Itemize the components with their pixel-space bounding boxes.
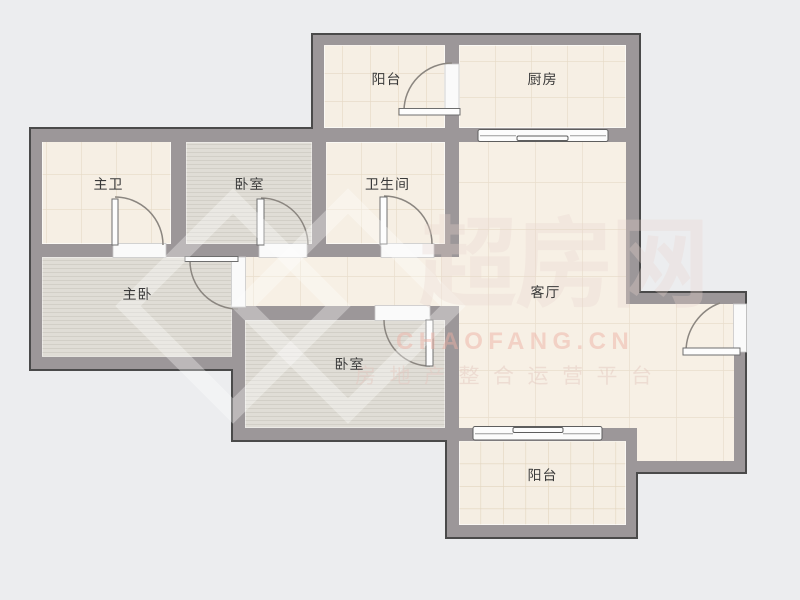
svg-text:CHAOFANG.CN: CHAOFANG.CN [396,328,634,355]
